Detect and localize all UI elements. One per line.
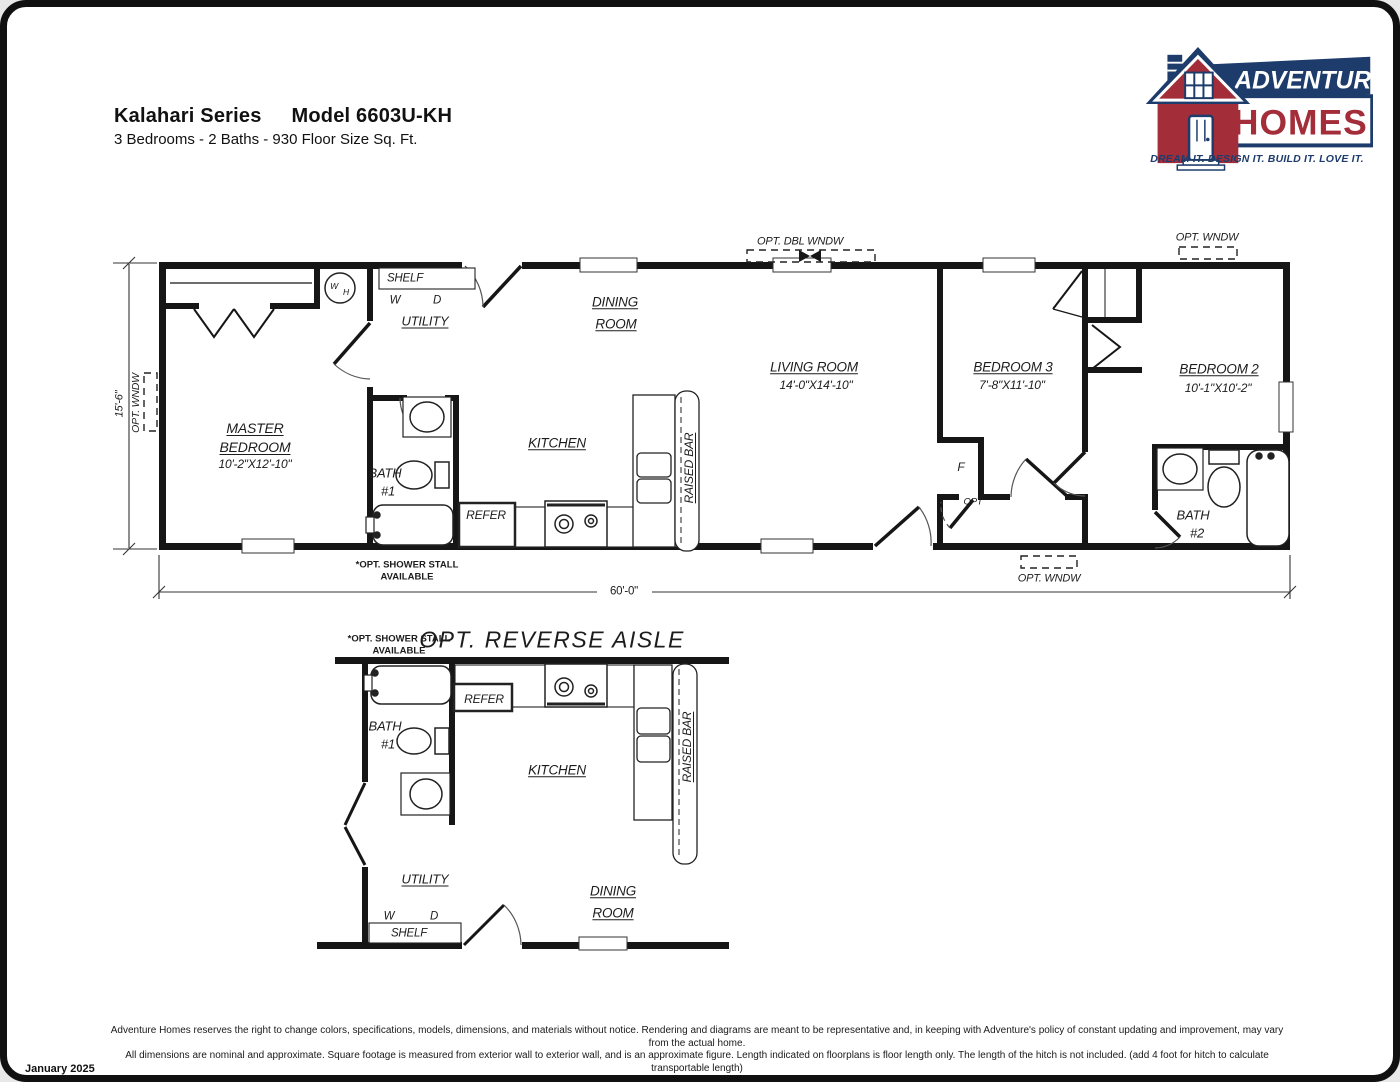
reverse-raised-bar-label: RAISED BAR — [681, 712, 693, 783]
shelf-label: SHELF — [387, 273, 423, 285]
reverse-utility-label: UTILITY — [402, 873, 449, 886]
furnace-label: F — [957, 461, 964, 473]
bath1-label-1: BATH — [369, 467, 402, 480]
reverse-shower-note-2: AVAILABLE — [373, 646, 426, 656]
bedroom2-dims: 10'-1"X10'-2" — [1185, 382, 1252, 394]
opt-window-label-left: OPT. WNDW — [131, 373, 142, 433]
height-dimension: 15'-6" — [115, 391, 126, 418]
reverse-washer-label: W — [384, 911, 395, 923]
reverse-refer-label: REFER — [464, 693, 504, 705]
bedroom2-label: BEDROOM 2 — [1179, 362, 1258, 376]
reverse-dryer-label: D — [430, 911, 438, 923]
master-bedroom-dims: 10'-2"X12'-10" — [218, 458, 291, 470]
bedroom3-label: BEDROOM 3 — [973, 360, 1052, 374]
floorplan-sheet: Kalahari SeriesModel 6603U-KH 3 Bedrooms… — [0, 0, 1400, 1082]
bath2-label-2: #2 — [1190, 527, 1204, 540]
opt-window-label-bottom: OPT. WNDW — [1018, 574, 1081, 585]
bath1-label-2: #1 — [381, 485, 395, 498]
dining-room-label-1: DINING — [592, 295, 638, 309]
reverse-kitchen-label: KITCHEN — [528, 763, 586, 777]
reverse-bath1-label-1: BATH — [369, 720, 402, 733]
disclaimer-line-1: Adventure Homes reserves the right to ch… — [102, 1025, 1292, 1050]
bath2-label-1: BATH — [1177, 509, 1210, 522]
utility-room-label: UTILITY — [402, 315, 449, 328]
water-heater-w: W — [330, 282, 338, 291]
dining-room-label-2: ROOM — [595, 317, 636, 331]
living-room-label: LIVING ROOM — [770, 360, 858, 374]
kitchen-label: KITCHEN — [528, 436, 586, 450]
shower-note-1: *OPT. SHOWER STALL — [356, 560, 459, 570]
bedroom3-dims: 7'-8"X11'-10" — [979, 379, 1045, 391]
reverse-dining-label-2: ROOM — [592, 906, 633, 920]
master-bedroom-label-1: MASTER — [226, 421, 283, 435]
disclaimer: Adventure Homes reserves the right to ch… — [102, 1025, 1292, 1082]
disclaimer-line-2: All dimensions are nominal and approxima… — [102, 1050, 1292, 1075]
reverse-bath1-label-2: #1 — [381, 738, 395, 751]
raised-bar-label: RAISED BAR — [683, 433, 695, 504]
reverse-dining-label-1: DINING — [590, 884, 636, 898]
reverse-plan-door-arcs — [504, 905, 521, 945]
opt-window-label-top: OPT. WNDW — [1176, 233, 1239, 244]
shower-note-2: AVAILABLE — [381, 572, 434, 582]
master-bedroom-label-2: BEDROOM — [220, 440, 291, 454]
living-room-dims: 14'-0"X14'-10" — [779, 379, 852, 391]
water-heater-h: H — [343, 288, 349, 297]
reverse-shelf-label: SHELF — [391, 928, 427, 940]
refer-label: REFER — [466, 509, 506, 521]
dryer-label: D — [433, 295, 441, 307]
disclaimer-line-3: Ask your retailer for specifics. PRICE A… — [102, 1075, 1292, 1082]
floorplan-drawing — [7, 7, 1400, 1082]
opt-dbl-window-label: OPT. DBL WNDW — [757, 237, 843, 248]
main-plan-walls — [159, 262, 1290, 550]
reverse-aisle-title: OPT. REVERSE AISLE — [419, 629, 685, 652]
washer-label: W — [390, 295, 401, 307]
reverse-plan-fixtures — [364, 664, 697, 943]
furnace-opt-label: OPT — [964, 497, 983, 507]
revision-date: January 2025 — [25, 1063, 95, 1075]
reverse-shower-note-1: *OPT. SHOWER STALL — [348, 634, 451, 644]
width-dimension: 60'-0" — [605, 586, 643, 598]
